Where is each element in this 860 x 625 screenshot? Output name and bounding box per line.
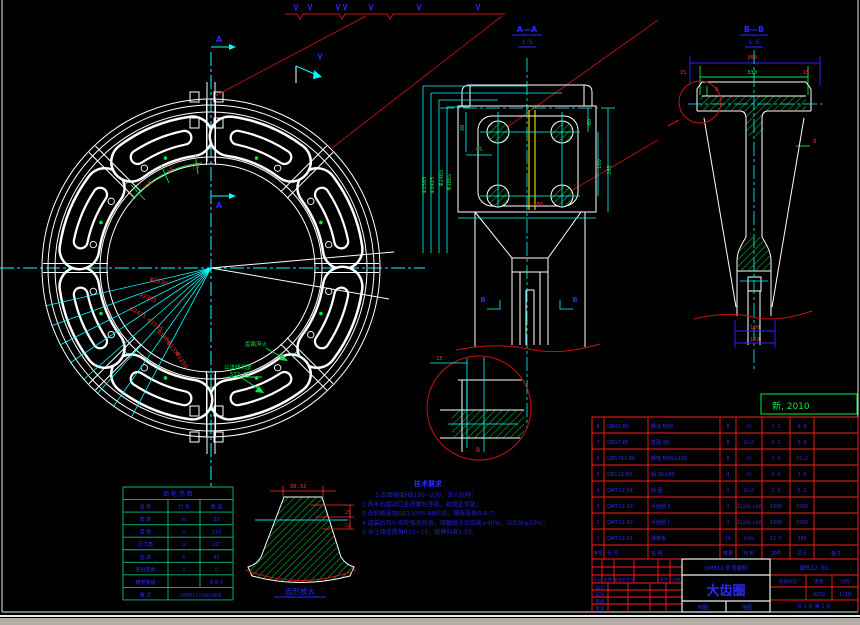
tech-note-line: 3.齿轮精度按GB10095-88检验，精度等级8-8-7； xyxy=(362,510,499,518)
section-letter: A xyxy=(216,35,223,44)
rev-header-cell: 更改文件号 xyxy=(614,576,634,582)
bom-cell: 1930 xyxy=(770,520,782,526)
dim-label: 120 xyxy=(750,337,760,343)
company-line: QM512 矿渣磨机 xyxy=(704,564,748,572)
trace-label: 描图 xyxy=(742,604,752,611)
bom-cell: 6 xyxy=(596,456,599,462)
param-cell: 20 xyxy=(213,517,219,523)
bom-cell: 16 xyxy=(725,536,731,542)
bom-cell: 弹簧板 xyxy=(651,535,666,542)
drawing-title: 大齿圈 xyxy=(706,583,745,599)
bom-cell: 15.2 xyxy=(796,456,808,462)
bom-cell: 4 xyxy=(596,488,599,494)
bom-cell: 1 xyxy=(726,504,729,510)
dim-label: 52 xyxy=(345,523,351,529)
dim-label: 265 xyxy=(607,165,613,175)
scale-label: 比例 xyxy=(841,578,850,585)
view-title: B—B xyxy=(744,25,764,34)
bom-cell: 1.9 xyxy=(771,456,780,462)
section-letter: B xyxy=(572,296,577,304)
bom-cell: 1930 xyxy=(770,504,782,510)
stamp-text: 新, 2010 xyxy=(772,400,810,412)
sig-row-label: 设计 xyxy=(596,584,605,591)
bom-header-cell: 备注 xyxy=(831,550,841,557)
section-letter: A xyxy=(216,201,223,210)
param-note-label: 备 注 xyxy=(140,591,152,598)
dim-label: 15 xyxy=(803,70,810,76)
dim-label: 45 xyxy=(476,147,482,153)
param-header-cell: 名 称 xyxy=(140,504,152,511)
param-cell: 压力角 xyxy=(138,541,153,548)
bom-cell: 3 xyxy=(596,504,599,510)
sheet-bottom-line xyxy=(0,615,860,617)
param-cell: x xyxy=(183,567,186,573)
tech-note-line: 1.齿面硬度HB190~230，正火处理； xyxy=(375,491,477,499)
bom-cell: 1.6 xyxy=(797,472,806,478)
bom-cell: 螺母 M36 xyxy=(651,423,673,430)
bom-cell: GB119-86 xyxy=(607,472,632,478)
rev-header-cell: 处数 xyxy=(604,576,612,582)
bom-header-cell: 名 称 xyxy=(651,550,663,557)
cad-drawing-canvas: Φ2230 Φ2365 Φ2425 Φ1535 Φ1460 Φ1350 Φ125… xyxy=(0,0,860,625)
dim-label: 30 xyxy=(460,125,466,131)
drawing-number: QM512-01 xyxy=(800,565,829,572)
bom-cell: 1930 xyxy=(796,504,808,510)
detail-letter: B xyxy=(476,447,480,454)
bom-cell: 7 xyxy=(596,440,599,446)
dim-label: Φ2425 xyxy=(430,177,436,194)
param-cell: 0 xyxy=(215,567,218,573)
param-cell: h xyxy=(182,555,185,561)
dim-label: Φ2465 xyxy=(439,170,445,187)
param-cell: 齿 高 xyxy=(140,554,152,561)
param-cell: 20° xyxy=(212,542,221,548)
bom-header-cell: 总计 xyxy=(797,550,807,557)
bom-cell: GB41-86 xyxy=(607,424,629,430)
param-table-title: 齿 轮 参 数 xyxy=(163,490,193,498)
bom-cell: ZG340-640 xyxy=(737,504,762,510)
sheet-info: 共 1 张 第 1 张 xyxy=(797,603,831,610)
bom-cell: 8 xyxy=(726,424,729,430)
bom-cell: QM512-03 xyxy=(607,504,633,510)
leader-text: 577.52 xyxy=(230,372,250,378)
bom-cell: QM512-04 xyxy=(607,488,633,494)
bom-cell: 1930 xyxy=(796,520,808,526)
bom-cell: 8 xyxy=(726,456,729,462)
bom-cell: 45 xyxy=(746,456,752,462)
dim-label: 60 xyxy=(587,119,593,125)
view-scale: 1:5 xyxy=(522,39,533,46)
param-cell: m xyxy=(182,517,187,523)
bom-cell: 8 xyxy=(596,424,599,430)
bom-cell: QM512-02 xyxy=(607,520,633,526)
bom-header-cell: 序号 xyxy=(593,550,603,557)
notes-heading: 技术要求 xyxy=(414,479,443,488)
bom-cell: 1 xyxy=(596,536,599,542)
param-note-value: 与QM512-02配对使用 xyxy=(179,591,222,598)
sig-row-label: 校对 xyxy=(596,591,605,598)
leader-text: 齿面淬火 xyxy=(245,340,268,348)
bom-cell: GB97-85 xyxy=(607,440,629,446)
bom-cell: 65Mn xyxy=(744,536,755,542)
bom-cell: Q235 xyxy=(744,488,755,494)
sig-row-label: 审核 xyxy=(596,598,605,605)
bom-cell: 销 30×80 xyxy=(651,471,675,478)
bom-header-cell: 材 料 xyxy=(743,550,755,557)
tech-note-line: 4.组装后与小齿轮啮合检查，接触斑点沿齿高≥40%，沿齿长≥50%； xyxy=(362,519,548,527)
leader-text: 公法线长度 xyxy=(224,363,252,371)
scale-value: 1:10 xyxy=(839,592,851,598)
param-header-cell: 数 值 xyxy=(211,504,223,511)
view-caption: 齿形放大 xyxy=(285,586,315,596)
dim-label: 25 xyxy=(345,510,351,516)
tech-note-line: 2.两半齿圈对口处用螺栓连接，按规定预紧； xyxy=(362,500,482,508)
param-cell: 齿 数 xyxy=(140,529,152,536)
dim-label: 330 xyxy=(747,70,757,76)
bom-cell: 1 xyxy=(726,520,729,526)
window-status-bar xyxy=(0,618,860,625)
bom-cell: ZG340-640 xyxy=(737,520,762,526)
bom-cell: QM512-01 xyxy=(607,536,633,542)
sig-row-label: 批准 xyxy=(596,605,605,612)
bom-cell: 1.1 xyxy=(771,424,780,430)
bom-cell: 0.1 xyxy=(771,440,780,446)
bom-cell: 45 xyxy=(746,424,752,430)
param-cell: 模 数 xyxy=(140,516,152,523)
bom-header-cell: 数量 xyxy=(723,550,733,557)
bom-header-cell: 代 号 xyxy=(607,550,619,557)
bom-cell: 0.8 xyxy=(797,440,806,446)
param-cell: 45 xyxy=(213,555,219,561)
dim-label: 8 xyxy=(813,139,816,145)
param-cell: z xyxy=(183,530,186,536)
dim-label: 200 xyxy=(533,202,543,208)
bom-cell: 半齿圈 Ⅰ xyxy=(651,519,669,526)
weight-value: 8250 xyxy=(813,592,825,598)
draw-label: 制图 xyxy=(698,604,708,611)
rev-header-cell: 标记 xyxy=(593,576,601,582)
bom-cell: GB5782-86 xyxy=(607,456,635,462)
rev-header-cell: 日期 xyxy=(672,576,680,582)
bom-cell: 2.6 xyxy=(771,488,780,494)
bom-cell: 挡 圈 xyxy=(651,487,663,494)
param-cell: 110 xyxy=(212,530,222,536)
bom-cell: 垫圈 36 xyxy=(651,439,669,446)
bom-cell: 2 xyxy=(596,520,599,526)
dim-label: 15 xyxy=(680,70,687,76)
view-scale: 1:5 xyxy=(749,39,760,46)
dim-label: 30.32 xyxy=(290,484,307,490)
dim-label: Φ2365 xyxy=(422,177,428,194)
bom-header-cell: 单件 xyxy=(771,550,781,557)
stage-label: 阶段标记 xyxy=(779,578,797,585)
bom-cell: 2 xyxy=(726,488,729,494)
bom-cell: 5.2 xyxy=(797,488,806,494)
dim-label: 360 xyxy=(747,55,757,61)
bom-cell: 0.4 xyxy=(771,472,780,478)
dim-label: 100 xyxy=(750,325,760,331)
bom-cell: 螺栓 M36×200 xyxy=(651,455,687,462)
section-letter: B xyxy=(480,296,485,304)
bom-cell: 200 xyxy=(797,536,806,542)
bom-cell: Q235 xyxy=(744,440,755,446)
dim-label: 100 xyxy=(597,159,603,169)
bom-cell: 5 xyxy=(596,472,599,478)
dim-label: 15 xyxy=(436,356,443,362)
bom-cell: 12.5 xyxy=(770,536,782,542)
bom-cell: 半齿圈 Ⅱ xyxy=(651,503,670,510)
dim-label: Φ1865 xyxy=(447,174,453,191)
cad-window: Φ2230 Φ2365 Φ2425 Φ1535 Φ1460 Φ1350 Φ125… xyxy=(0,0,860,625)
bom-cell: 8 xyxy=(726,440,729,446)
view-title: A—A xyxy=(517,25,538,34)
bom-cell: 8.8 xyxy=(797,424,806,430)
weight-label: 重量 xyxy=(815,578,824,585)
param-cell: 变位系数 xyxy=(135,566,155,573)
param-cell: 8-8-7 xyxy=(210,580,223,586)
rev-header-cell: 签字 xyxy=(660,576,668,582)
bom-cell: 4 xyxy=(726,472,729,478)
tech-note-line: 5.未注铸造圆角R10~15，拔模斜度1:20。 xyxy=(362,528,478,536)
param-header-cell: 代 号 xyxy=(178,504,190,511)
param-cell: 精度等级 xyxy=(135,579,155,586)
bom-cell: 35 xyxy=(746,472,752,478)
